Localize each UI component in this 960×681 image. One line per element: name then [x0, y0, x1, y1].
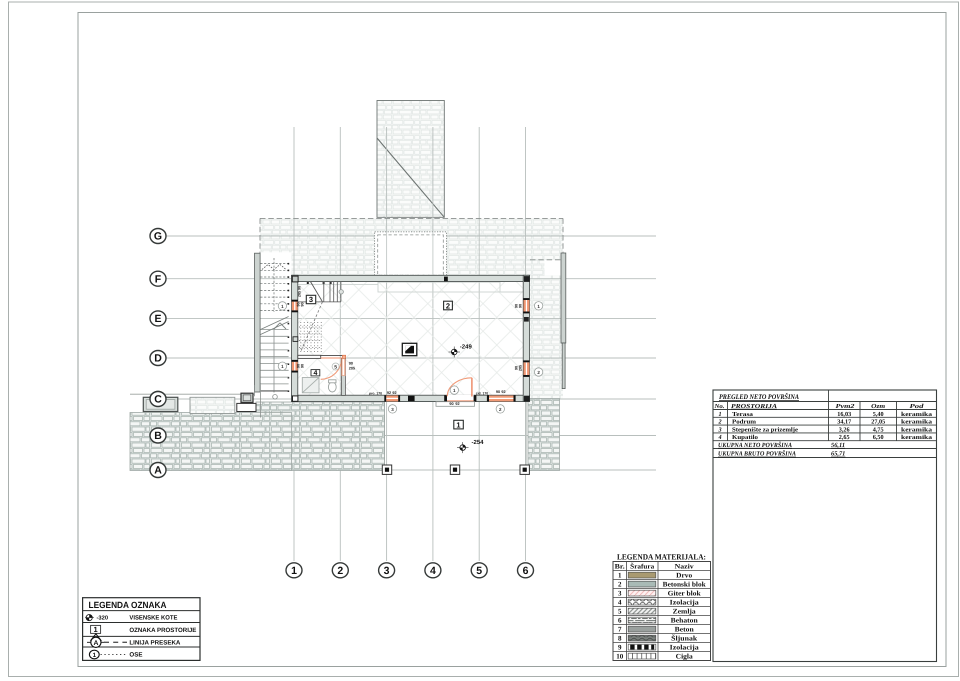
svg-text:E: E: [154, 313, 161, 325]
svg-text:OSE: OSE: [129, 652, 142, 659]
svg-text:92: 92: [455, 402, 459, 406]
svg-text:5: 5: [618, 607, 622, 615]
svg-text:Izolacija: Izolacija: [670, 598, 700, 606]
svg-text:3: 3: [618, 589, 622, 597]
svg-text:90: 90: [349, 362, 353, 366]
svg-text:Šrafura: Šrafura: [630, 562, 655, 570]
svg-text:7: 7: [618, 625, 622, 633]
svg-text:5: 5: [334, 365, 337, 371]
svg-text:2: 2: [446, 301, 450, 310]
svg-text:4: 4: [430, 565, 436, 577]
svg-text:205: 205: [519, 365, 523, 371]
svg-text:6: 6: [523, 565, 529, 577]
svg-text:VISENSKE KOTE: VISENSKE KOTE: [129, 615, 177, 622]
svg-text:Ozm: Ozm: [871, 403, 885, 410]
svg-text:LEGENDA MATERIJALA:: LEGENDA MATERIJALA:: [617, 553, 706, 562]
svg-text:-249: -249: [460, 344, 473, 351]
svg-text:PROSTORIJA: PROSTORIJA: [731, 403, 777, 410]
svg-text:5: 5: [476, 565, 482, 577]
svg-text:UKUPNA BRUTO POVRŠINA: UKUPNA BRUTO POVRŠINA: [718, 450, 796, 458]
svg-text:Kupatilo: Kupatilo: [732, 434, 758, 441]
svg-text:205: 205: [349, 367, 355, 371]
svg-text:2: 2: [717, 419, 721, 426]
svg-text:90: 90: [496, 390, 500, 394]
svg-text:Naziv: Naziv: [675, 563, 695, 570]
svg-text:Pod: Pod: [910, 403, 925, 410]
svg-text:1: 1: [94, 625, 98, 634]
svg-text:3: 3: [309, 295, 313, 304]
svg-text:G: G: [154, 231, 162, 243]
svg-text:4: 4: [618, 598, 622, 606]
svg-text:92: 92: [387, 391, 391, 395]
svg-text:10: 10: [616, 652, 624, 660]
svg-text:UKUPNA NETO POVRŠINA: UKUPNA NETO POVRŠINA: [718, 441, 792, 449]
svg-text:Šljunak: Šljunak: [671, 633, 697, 642]
svg-text:4: 4: [717, 434, 721, 441]
svg-text:6,50: 6,50: [873, 434, 884, 441]
svg-text:3: 3: [717, 426, 721, 433]
svg-text:92: 92: [501, 390, 505, 394]
svg-text:4,75: 4,75: [873, 426, 884, 433]
svg-text:4: 4: [313, 370, 317, 377]
svg-text:keramika: keramika: [901, 434, 932, 441]
svg-text:2,65: 2,65: [839, 434, 850, 441]
svg-text:1: 1: [618, 571, 622, 579]
svg-text:-254: -254: [472, 439, 485, 446]
svg-text:90: 90: [519, 304, 523, 308]
svg-text:A: A: [93, 640, 98, 647]
svg-text:1: 1: [93, 652, 97, 659]
svg-text:Br.: Br.: [615, 563, 625, 570]
svg-text:65,71: 65,71: [831, 451, 845, 458]
svg-text:205: 205: [298, 291, 302, 297]
svg-text:Stepenište za prizemlje: Stepenište za prizemlje: [732, 426, 798, 433]
svg-text:Pvm2: Pvm2: [836, 403, 855, 410]
svg-text:Drvo: Drvo: [676, 571, 693, 579]
svg-text:D: D: [154, 353, 162, 365]
svg-text:2: 2: [337, 565, 343, 577]
svg-text:3: 3: [384, 565, 390, 577]
svg-text:8: 8: [618, 634, 622, 642]
svg-text:90: 90: [301, 364, 305, 368]
svg-text:-320: -320: [97, 614, 109, 621]
svg-text:pro. 170: pro. 170: [369, 392, 382, 396]
svg-text:OZNAKA PROSTORIJE: OZNAKA PROSTORIJE: [129, 627, 196, 634]
svg-text:34,17: 34,17: [837, 419, 851, 426]
svg-text:LEGENDA OZNAKA: LEGENDA OZNAKA: [89, 600, 167, 610]
svg-text:A: A: [154, 465, 162, 477]
svg-text:27,05: 27,05: [871, 419, 885, 426]
svg-text:keramika: keramika: [901, 426, 932, 433]
svg-text:Giter blok: Giter blok: [668, 589, 701, 597]
svg-text:Cigla: Cigla: [676, 652, 694, 660]
svg-text:1: 1: [718, 411, 721, 418]
svg-text:B: B: [154, 430, 162, 442]
svg-text:keramika: keramika: [901, 411, 932, 418]
svg-text:1: 1: [291, 565, 297, 577]
svg-text:Betonski blok: Betonski blok: [663, 580, 706, 588]
svg-text:92: 92: [392, 391, 396, 395]
svg-text:2: 2: [618, 580, 622, 588]
svg-text:90: 90: [449, 402, 453, 406]
svg-text:C: C: [154, 394, 162, 406]
svg-text:LINIJA PRESEKA: LINIJA PRESEKA: [129, 640, 181, 647]
svg-text:F: F: [155, 273, 162, 285]
svg-text:PREGLED NETO POVRŠINA: PREGLED NETO POVRŠINA: [719, 392, 799, 401]
svg-text:3,26: 3,26: [839, 426, 850, 433]
svg-text:Behaton: Behaton: [671, 616, 698, 624]
svg-text:Zemlja: Zemlja: [673, 607, 697, 615]
svg-text:zid. 170: zid. 170: [476, 392, 488, 396]
svg-text:16,03: 16,03: [837, 411, 851, 418]
svg-text:Beton: Beton: [675, 625, 694, 633]
svg-text:90: 90: [301, 302, 305, 306]
svg-text:9: 9: [618, 643, 622, 651]
svg-text:5,40: 5,40: [873, 411, 884, 418]
svg-text:90: 90: [298, 286, 302, 290]
svg-text:keramika: keramika: [901, 419, 932, 426]
svg-text:6: 6: [618, 616, 622, 624]
svg-text:Terasa: Terasa: [732, 411, 753, 418]
svg-text:No.: No.: [713, 403, 725, 410]
svg-text:1: 1: [456, 421, 460, 430]
svg-text:Podrum: Podrum: [732, 419, 757, 426]
svg-text:Izolacija: Izolacija: [670, 643, 700, 651]
svg-text:56,11: 56,11: [831, 442, 845, 449]
